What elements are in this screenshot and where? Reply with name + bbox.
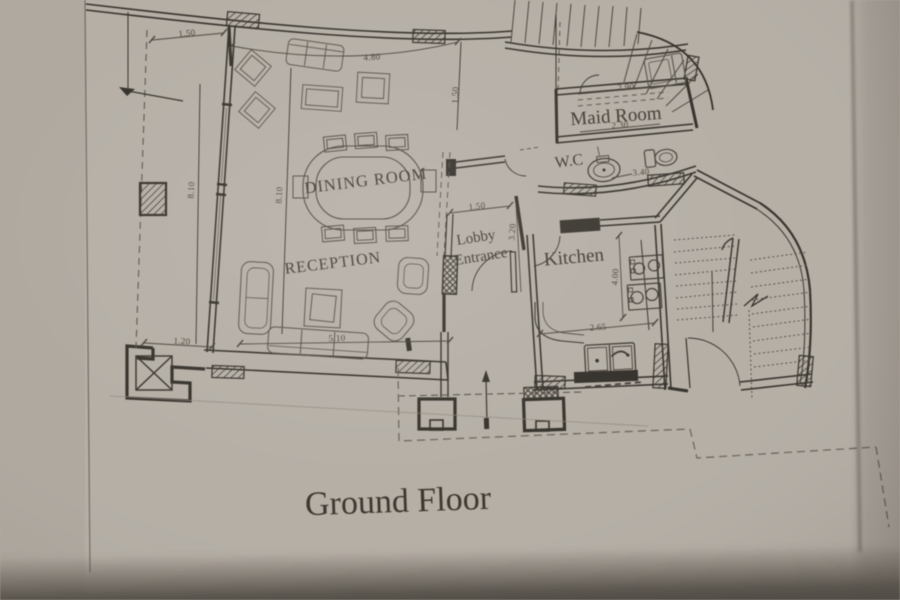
- floor-plan-drawing: DINING ROOM RECEPTION Maid Room W.C Lobb…: [0, 0, 900, 600]
- photo-vignette: [0, 0, 900, 600]
- background-right: [850, 0, 900, 600]
- floor-plan-photograph: DINING ROOM RECEPTION Maid Room W.C Lobb…: [0, 0, 900, 600]
